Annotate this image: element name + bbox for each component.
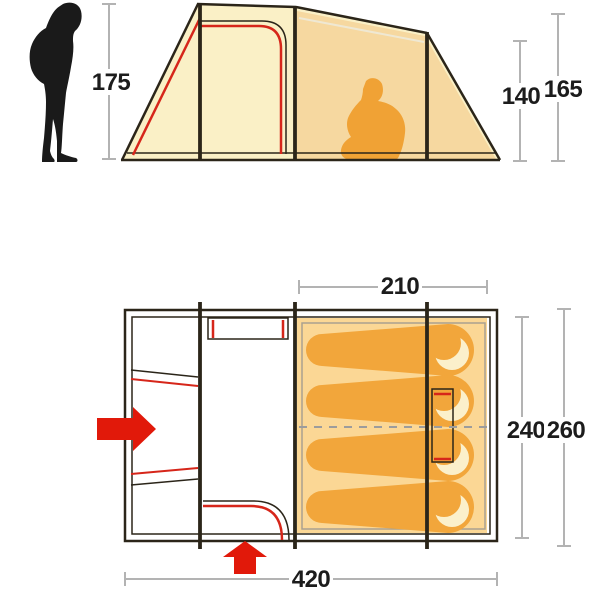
standing-person-silhouette <box>30 3 82 162</box>
total-length-label: 420 <box>292 566 331 593</box>
dim-inner-width: 210 <box>299 273 487 300</box>
side-entrance-arrow <box>97 407 156 451</box>
side-view: 175 140 165 <box>30 3 585 162</box>
floor-plan: 210 240 260 420 <box>97 273 588 593</box>
tent-spec-diagram: 175 140 165 <box>0 0 600 600</box>
diagram-canvas: 175 140 165 <box>0 0 600 600</box>
dim-peak-height: 165 <box>541 14 585 161</box>
peak-height-label: 165 <box>544 76 583 103</box>
inner-height-label: 140 <box>502 83 541 110</box>
outer-depth-label: 260 <box>547 417 586 444</box>
dim-person-height: 175 <box>89 4 133 159</box>
dim-outer-depth: 260 <box>544 309 588 546</box>
inner-depth-label: 240 <box>507 417 546 444</box>
dim-inner-height: 140 <box>499 41 543 161</box>
dim-inner-depth: 240 <box>504 317 548 538</box>
dim-total-length: 420 <box>125 566 497 593</box>
front-entrance-arrow <box>223 541 267 574</box>
inner-width-label: 210 <box>381 273 420 300</box>
person-height-label: 175 <box>92 69 131 96</box>
top-window <box>208 318 288 339</box>
